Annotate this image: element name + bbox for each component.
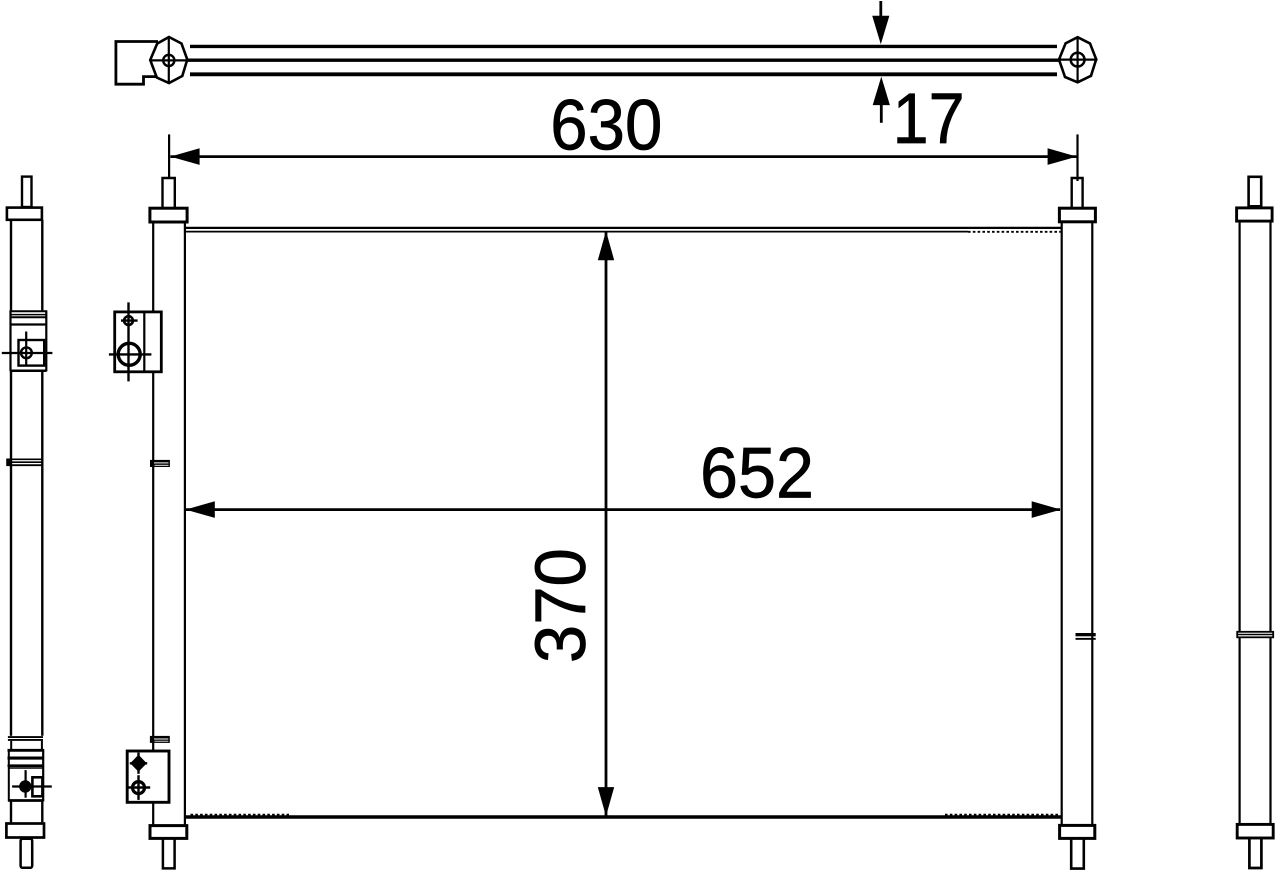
svg-text:652: 652 [700, 435, 814, 514]
svg-text:17: 17 [893, 80, 965, 159]
svg-text:370: 370 [522, 548, 601, 663]
svg-text:630: 630 [550, 87, 662, 166]
